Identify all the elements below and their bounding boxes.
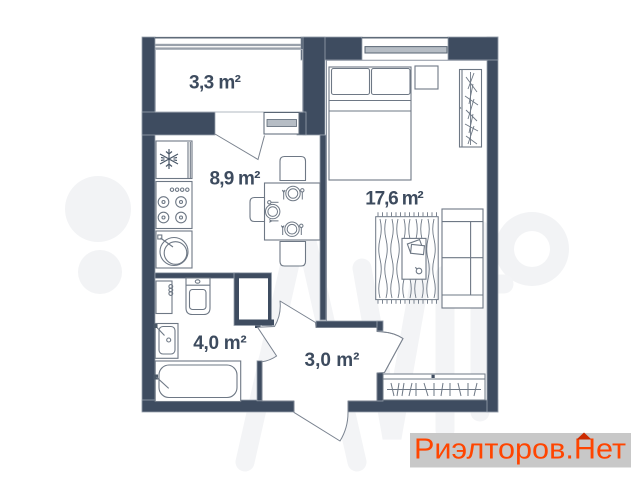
svg-text:17,6 m²: 17,6 m² [365, 189, 424, 210]
svg-text:Риэлторов.Нет: Риэлторов.Нет [414, 434, 626, 466]
svg-text:3,3 m²: 3,3 m² [189, 73, 241, 94]
svg-text:8,9 m²: 8,9 m² [210, 169, 261, 190]
svg-text:4,0 m²: 4,0 m² [193, 333, 247, 354]
svg-text:3,0 m²: 3,0 m² [305, 350, 360, 371]
